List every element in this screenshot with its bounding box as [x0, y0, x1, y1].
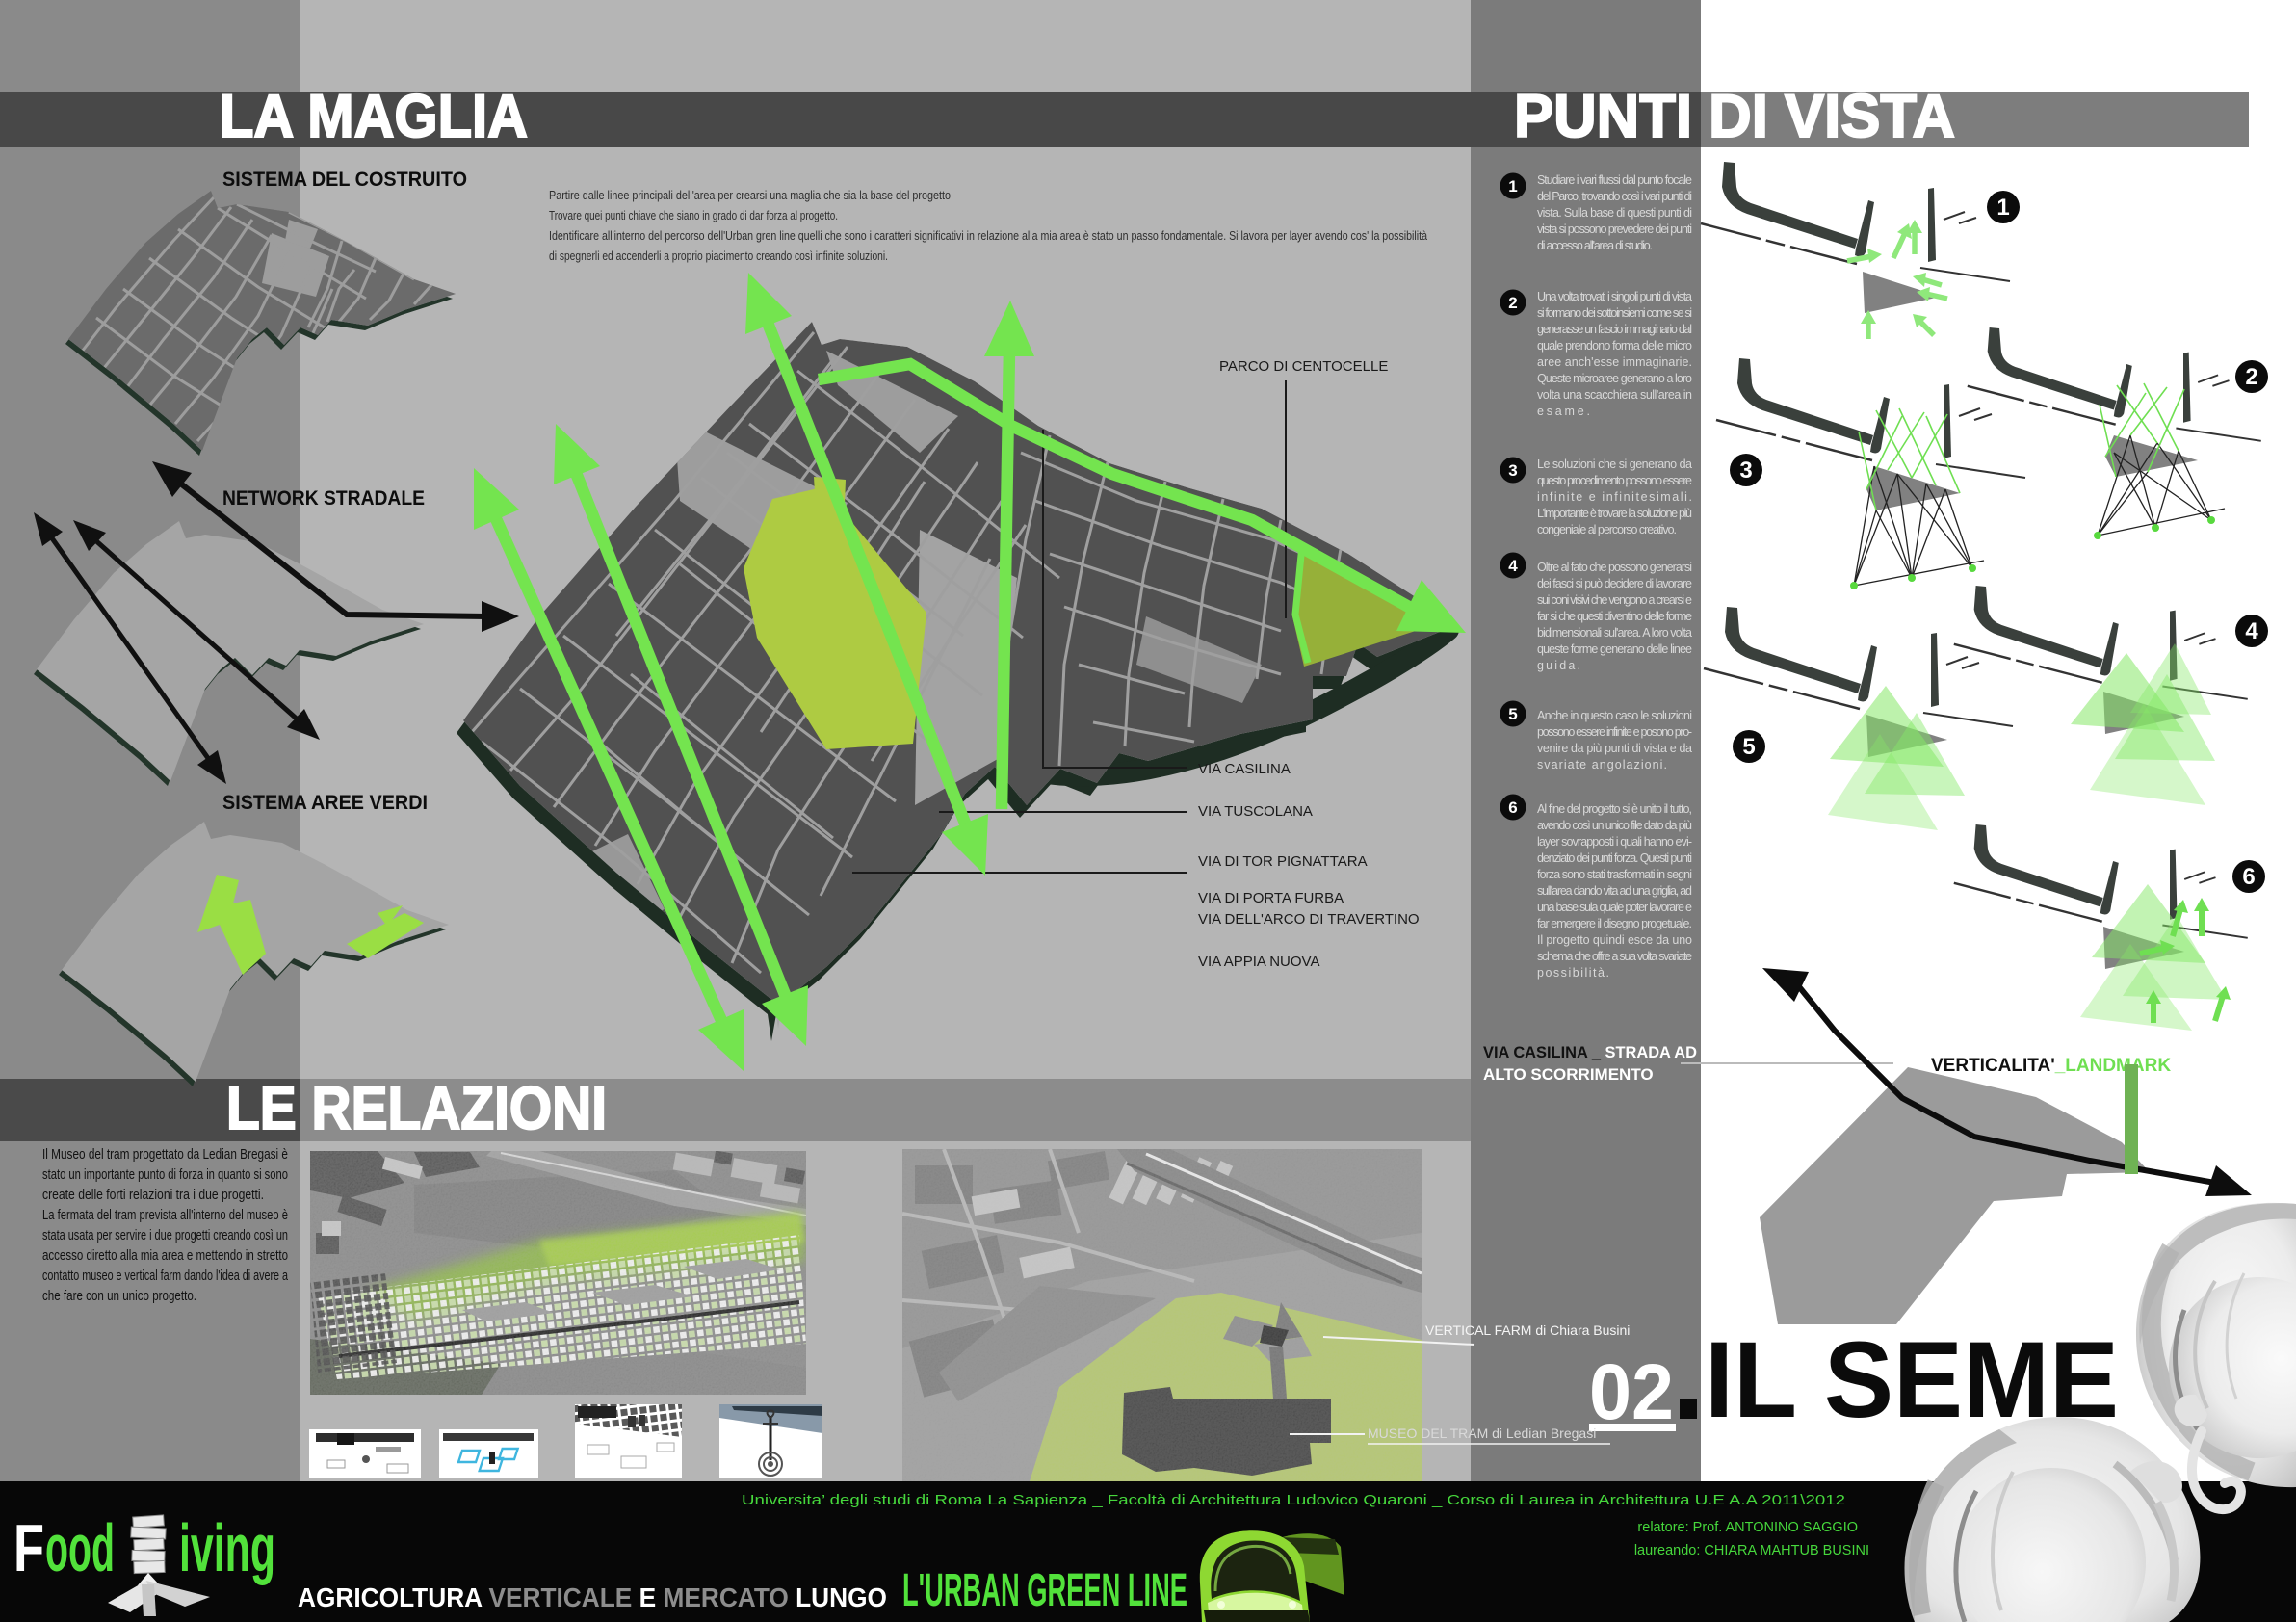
svg-text:di accesso all'area di studio.: di accesso all'area di studio.	[1537, 239, 1653, 252]
svg-text:una base sula quale poter lavo: una base sula quale poter lavorare e	[1537, 901, 1692, 914]
svg-text:Anche in questo caso le soluzi: Anche in questo caso le soluzioni	[1537, 709, 1692, 722]
svg-text:VIA DI TOR PIGNATTARA: VIA DI TOR PIGNATTARA	[1198, 853, 1368, 870]
svg-text:denziato dei punti forza. Ques: denziato dei punti forza. Questi punti	[1537, 851, 1692, 865]
svg-text:sui coni visivi che vengono a: sui coni visivi che vengono a crearsi e	[1537, 593, 1692, 607]
svg-text:bidimensionali sul'area. A lor: bidimensionali sul'area. A loro volta	[1537, 626, 1692, 640]
svg-text:VIA DELL'ARCO DI TRAVERTINO: VIA DELL'ARCO DI TRAVERTINO	[1198, 911, 1420, 928]
svg-text:queste forme generano delle li: queste forme generano delle linee	[1537, 642, 1692, 656]
svg-text:quale prendono forma delle mic: quale prendono forma delle micro	[1537, 339, 1692, 353]
svg-text:guida.: guida.	[1537, 659, 1580, 672]
svg-text:ood: ood	[45, 1510, 115, 1585]
svg-text:relatore: Prof. ANTONINO SAGG: relatore: Prof. ANTONINO SAGGIO	[1637, 1520, 1858, 1535]
svg-text:VIA APPIA NUOVA: VIA APPIA NUOVA	[1198, 954, 1319, 970]
svg-text:LE RELAZIONI: LE RELAZIONI	[226, 1075, 607, 1142]
svg-text:possibilità.: possibilità.	[1537, 966, 1609, 980]
svg-text:VIA CASILINA: VIA CASILINA	[1198, 761, 1291, 777]
svg-text:1: 1	[1996, 195, 2009, 221]
svg-text:far si che questi diventino de: far si che questi diventino delle forme	[1537, 610, 1692, 623]
svg-text:3: 3	[1739, 458, 1752, 484]
svg-text:PARCO DI CENTOCELLE: PARCO DI CENTOCELLE	[1219, 358, 1388, 375]
svg-text:create delle forti relazioni t: create delle forti relazioni tra i due p…	[42, 1187, 264, 1203]
svg-text:vista. Sulla base di questi pu: vista. Sulla base di questi punti di	[1537, 206, 1692, 220]
svg-text:forza sono stati trasformati i: forza sono stati trasformati in segni	[1537, 868, 1692, 881]
svg-text:layer sovrapposti i quali hann: layer sovrapposti i quali hanno evi-	[1537, 835, 1692, 849]
svg-text:VIA DI PORTA FURBA: VIA DI PORTA FURBA	[1198, 890, 1344, 906]
svg-text:Il Museo del tram progettato d: Il Museo del tram progettato da Ledian B…	[42, 1146, 288, 1163]
svg-text:stato un importante punto di f: stato un importante punto di forza in qu…	[42, 1166, 288, 1183]
svg-text:Le soluzioni che si generano d: Le soluzioni che si generano da	[1537, 458, 1692, 471]
svg-text:Identificare all'interno del p: Identificare all'interno del percorso de…	[549, 228, 1428, 243]
svg-text:generasse un fascio immaginari: generasse un fascio immaginario dal	[1537, 323, 1692, 336]
svg-text:Oltre al fato che possono gene: Oltre al fato che possono generarsi	[1537, 561, 1692, 574]
svg-text:svariate angolazioni.: svariate angolazioni.	[1537, 758, 1667, 772]
svg-text:LA MAGLIA: LA MAGLIA	[220, 83, 528, 150]
svg-text:VIA CASILINA _ STRADA AD: VIA CASILINA _ STRADA AD	[1483, 1043, 1697, 1061]
svg-text:del Parco, trovando così i var: del Parco, trovando così i vari punti di	[1537, 190, 1692, 203]
svg-text:SISTEMA DEL COSTRUITO: SISTEMA DEL COSTRUITO	[222, 169, 467, 191]
svg-text:che fare con un unico progetto: che fare con un unico progetto.	[42, 1288, 196, 1304]
svg-text:possono essere infinite e poso: possono essere infinite e posono pro-	[1537, 725, 1692, 739]
svg-text:AGRICOLTURA VERTICALE E MERCAT: AGRICOLTURA VERTICALE E MERCATO LUNGO	[298, 1583, 887, 1612]
svg-text:PUNTI DI VISTA: PUNTI DI VISTA	[1514, 83, 1955, 150]
svg-text:La fermata del tram prevista a: La fermata del tram prevista all'interno…	[42, 1207, 288, 1223]
svg-text:Partire dalle linee principali: Partire dalle linee principali dell'area…	[549, 188, 953, 202]
svg-text:Una volta trovati i singoli pu: Una volta trovati i singoli punti di vis…	[1537, 290, 1692, 303]
svg-text:Trovare quei punti chiave che: Trovare quei punti chiave che siano in g…	[549, 208, 838, 222]
svg-text:si formano dei sottoinsiemi co: si formano dei sottoinsiemi come se si	[1537, 306, 1692, 320]
svg-text:congeniale al percorso creativ: congeniale al percorso creativo.	[1537, 523, 1677, 536]
svg-text:contatto museo e vertical farm: contatto museo e vertical farm dando l'i…	[42, 1268, 288, 1284]
svg-text:VERTICAL FARM di Chiara Busini: VERTICAL FARM di Chiara Busini	[1425, 1322, 1630, 1338]
svg-text:questo procedimento possono es: questo procedimento possono essere	[1537, 474, 1692, 487]
svg-text:6: 6	[1508, 798, 1517, 817]
svg-text:dei fasci si può decidere di l: dei fasci si può decidere di lavorare	[1537, 577, 1692, 590]
svg-text:6: 6	[2242, 864, 2255, 890]
svg-text:infinite e infinitesimali.: infinite e infinitesimali.	[1537, 490, 1692, 504]
svg-text:NETWORK STRADALE: NETWORK STRADALE	[222, 487, 425, 510]
svg-text:schema che offre a sua volta s: schema che offre a sua volta svariate	[1537, 950, 1692, 963]
svg-text:2: 2	[2245, 364, 2257, 390]
svg-text:Universita’ degli studi di Rom: Universita’ degli studi di Roma La Sapie…	[742, 1493, 1845, 1508]
svg-text:L'URBAN GREEN LINE: L'URBAN GREEN LINE	[902, 1565, 1187, 1616]
svg-text:3: 3	[1508, 461, 1517, 480]
svg-text:F: F	[13, 1510, 44, 1585]
svg-text:sull'area dando vita ad una gr: sull'area dando vita ad una griglia, ad	[1537, 884, 1692, 898]
svg-text:1: 1	[1508, 177, 1517, 196]
svg-text:vista si possono prevedere dei: vista si possono prevedere dei punti	[1537, 222, 1692, 236]
svg-text:4: 4	[1508, 557, 1518, 575]
svg-text:L'importante è trovare la solu: L'importante è trovare la soluzione più	[1537, 507, 1692, 520]
svg-text:venire da più punti di vista e: venire da più punti di vista e da	[1537, 742, 1692, 755]
svg-text:accesso diretto alla mia area: accesso diretto alla mia area e mettendo…	[42, 1247, 288, 1264]
svg-text:MUSEO DEL TRAM di Ledian Brega: MUSEO DEL TRAM di Ledian Bregasi	[1368, 1426, 1596, 1441]
svg-text:avendo così un unico file dato: avendo così un unico file dato da più	[1537, 819, 1692, 832]
svg-text:aree anch'esse immaginarie.: aree anch'esse immaginarie.	[1537, 355, 1692, 369]
svg-text:Queste microaree generano a lo: Queste microaree generano a loro	[1537, 372, 1692, 385]
svg-text:di spegnerli ed accenderli a p: di spegnerli ed accenderli a proprio pia…	[549, 249, 888, 263]
svg-text:2: 2	[1508, 294, 1517, 312]
svg-text:VIA TUSCOLANA: VIA TUSCOLANA	[1198, 803, 1313, 820]
svg-text:SISTEMA AREE VERDI: SISTEMA AREE VERDI	[222, 792, 428, 814]
svg-text:iving: iving	[179, 1510, 275, 1585]
svg-text:4: 4	[2245, 618, 2258, 644]
svg-text:stata usata per servire i due: stata usata per servire i due progetti c…	[42, 1227, 288, 1243]
svg-text:Studiare i vari flussi dal pu: Studiare i vari flussi dal punto focale	[1537, 173, 1692, 187]
svg-text:Al fine del progetto si è unit: Al fine del progetto si è unito il tutto…	[1537, 802, 1692, 816]
svg-text:laureando: CHIARA MAHTUB BUSIN: laureando: CHIARA MAHTUB BUSINI	[1634, 1543, 1869, 1558]
svg-text:Il progetto quindi esce da uno: Il progetto quindi esce da uno	[1537, 933, 1692, 947]
svg-text:far emergere il disegno proget: far emergere il disegno progetuale.	[1537, 917, 1692, 930]
svg-text:5: 5	[1508, 705, 1517, 723]
svg-text:volta una scacchiera sull'area: volta una scacchiera sull'area in	[1537, 388, 1692, 402]
svg-text:02: 02	[1589, 1348, 1674, 1436]
svg-text:5: 5	[1742, 734, 1755, 760]
svg-text:ALTO SCORRIMENTO: ALTO SCORRIMENTO	[1483, 1065, 1654, 1084]
